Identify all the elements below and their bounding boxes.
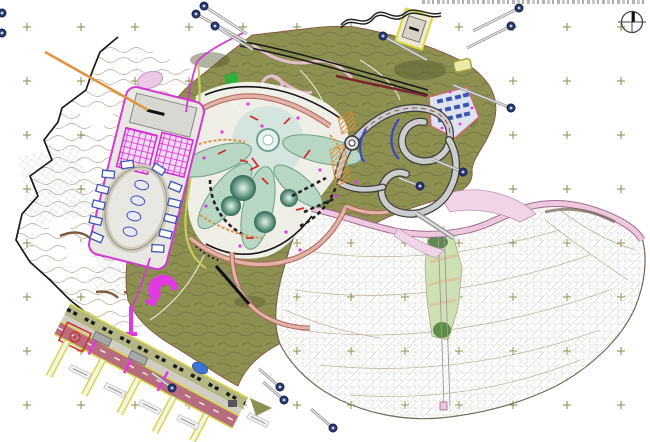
site-plan-canvas — [0, 0, 650, 442]
site-plan-drawing — [0, 0, 650, 442]
north-needle — [632, 12, 635, 22]
roundabout-center — [349, 140, 355, 146]
gray-structure — [228, 400, 237, 407]
terrain-clearing — [49, 219, 71, 233]
lift-station — [440, 402, 447, 410]
cone-roof — [221, 196, 241, 216]
central-fountain — [263, 135, 273, 145]
cone-roof — [254, 211, 276, 233]
terrain-clearing — [80, 105, 114, 127]
cone-roof — [280, 189, 298, 207]
terrain-lattice-patch — [18, 145, 92, 227]
clipped-title-text — [422, 0, 646, 4]
green-shade — [394, 60, 446, 80]
